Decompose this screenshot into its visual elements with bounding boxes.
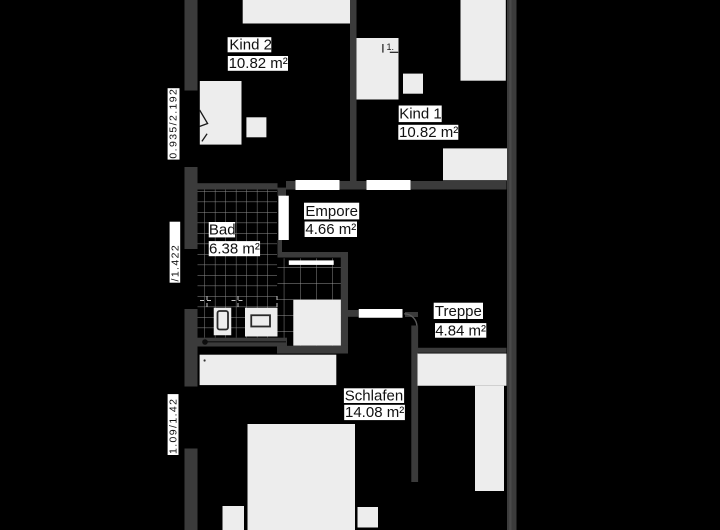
- svg-text:Kind 1: Kind 1: [399, 106, 442, 123]
- svg-text:4.66 m²: 4.66 m²: [305, 221, 356, 238]
- svg-text:/1.422: /1.422: [169, 244, 181, 282]
- svg-text:Schlafen: Schlafen: [345, 388, 403, 405]
- svg-text:10.82 m²: 10.82 m²: [399, 124, 458, 141]
- svg-text:0.935/2.192: 0.935/2.192: [168, 88, 180, 159]
- svg-text:1.09/1.42: 1.09/1.42: [168, 398, 180, 454]
- svg-text:4.84 m²: 4.84 m²: [435, 322, 486, 339]
- svg-text:10.82 m²: 10.82 m²: [229, 55, 288, 72]
- svg-text:Bad: Bad: [209, 222, 236, 239]
- svg-text:Empore: Empore: [305, 203, 358, 220]
- svg-text:Kind 2: Kind 2: [229, 37, 272, 54]
- svg-text:1.: 1.: [387, 42, 395, 52]
- svg-text:6.38 m²: 6.38 m²: [209, 240, 260, 257]
- svg-text:14.08 m²: 14.08 m²: [345, 404, 404, 421]
- svg-text:Treppe: Treppe: [435, 303, 482, 320]
